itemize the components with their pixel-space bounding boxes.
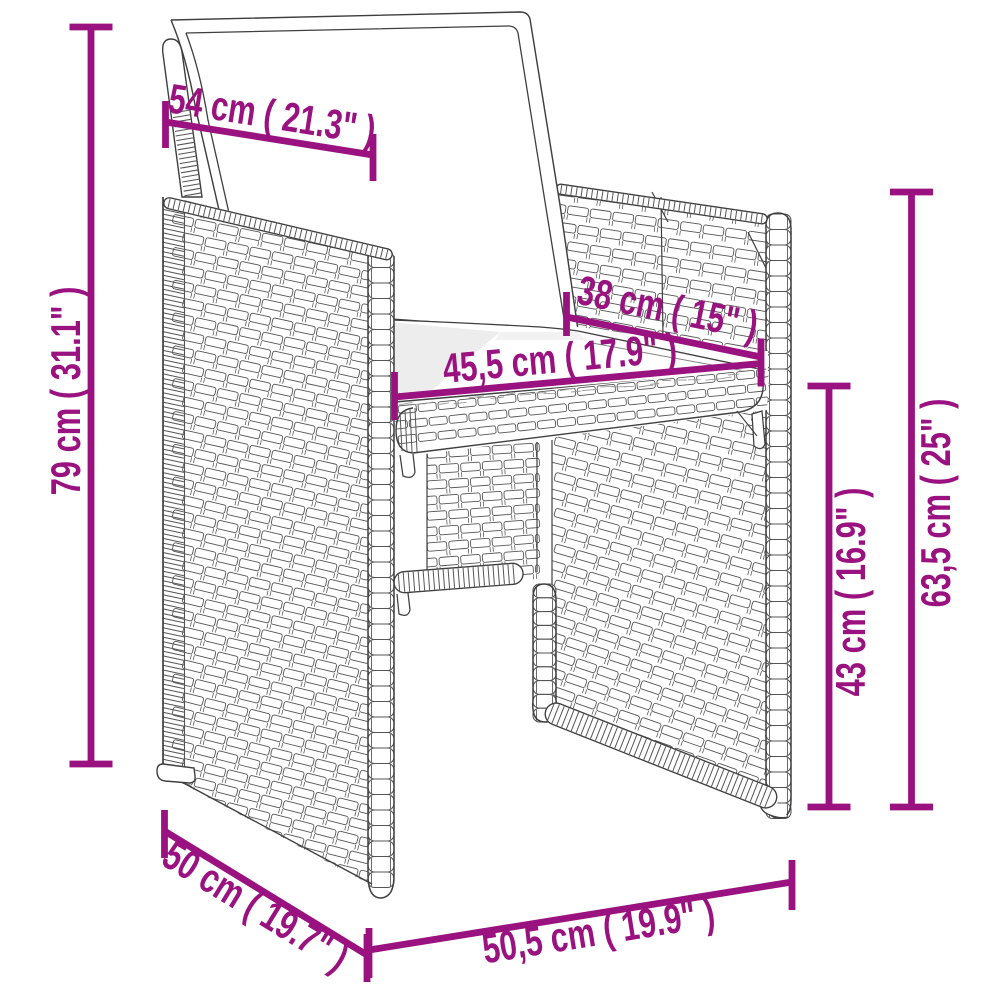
svg-text:63,5 cm ( 25" ): 63,5 cm ( 25" ) (913, 399, 959, 608)
svg-text:79 cm ( 31.1" ): 79 cm ( 31.1" ) (43, 287, 89, 496)
svg-text:43 cm ( 16.9" ): 43 cm ( 16.9" ) (828, 488, 874, 697)
